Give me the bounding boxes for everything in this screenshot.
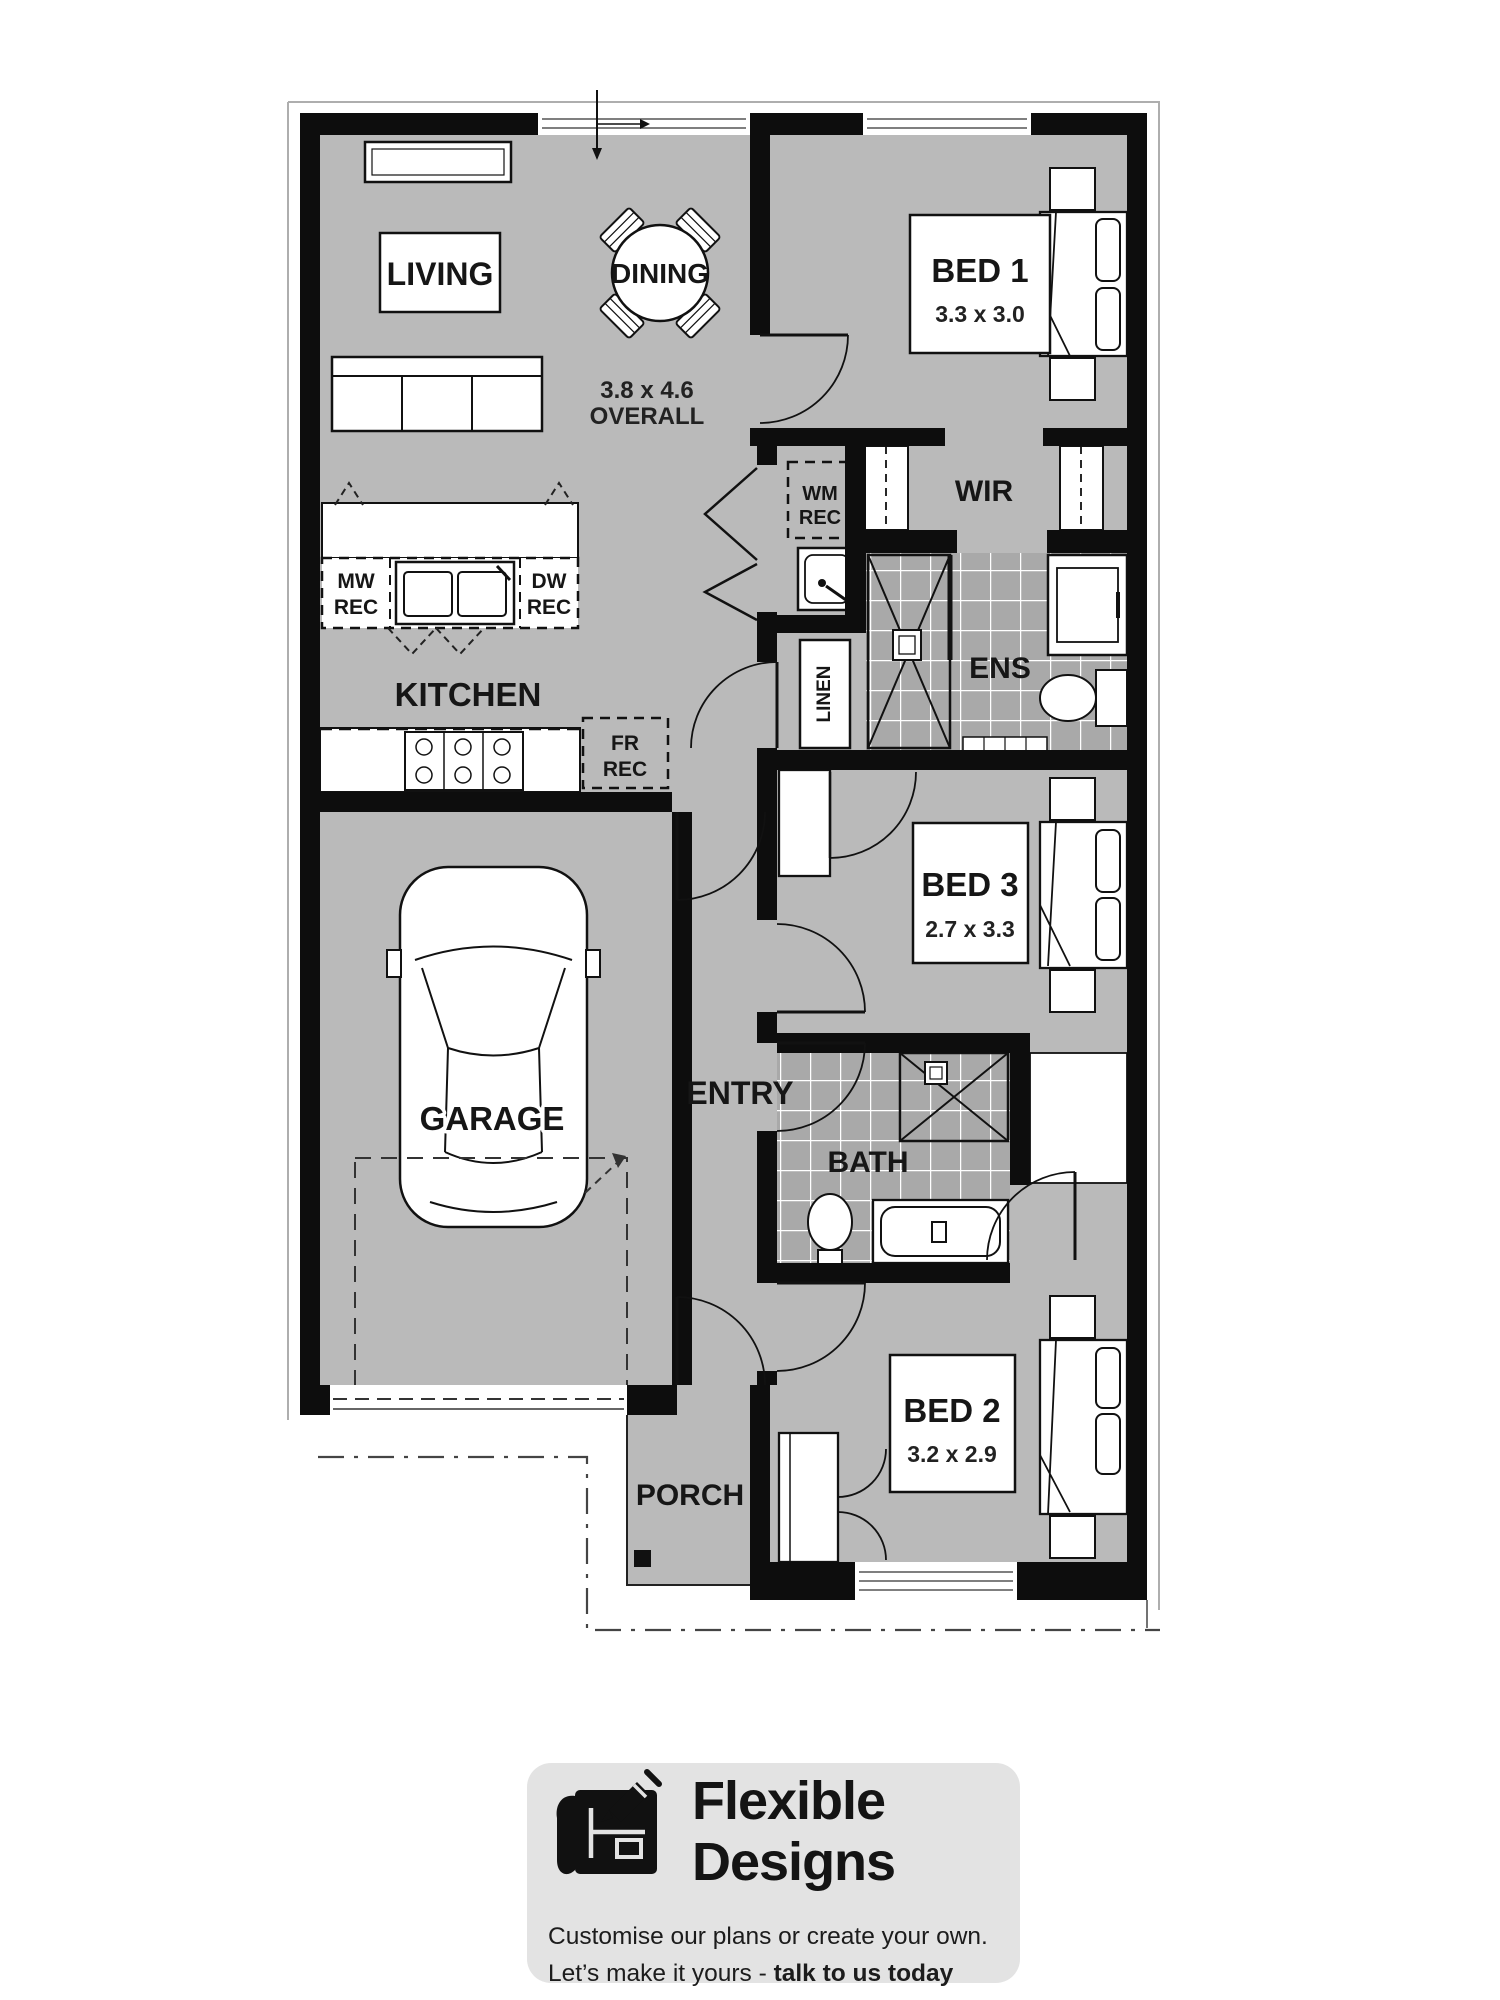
fr-rec-label-line1: FR <box>611 732 639 755</box>
garage-door <box>330 1385 627 1415</box>
kitchen-sink <box>396 562 514 624</box>
wm-rec-label-line2: REC <box>799 507 841 529</box>
dining-overall-dims-line2: OVERALL <box>590 403 705 430</box>
window-bed2 <box>855 1562 1017 1600</box>
bed3-dims: 2.7 x 3.3 <box>925 916 1015 942</box>
bed1-label: BED 1 <box>931 252 1028 289</box>
bed2-label: BED 2 <box>903 1392 1000 1429</box>
bed2-dims: 3.2 x 2.9 <box>907 1441 997 1467</box>
dining-label: DINING <box>611 258 709 289</box>
car <box>387 867 600 1227</box>
cooktop <box>405 732 523 790</box>
ens-label: ENS <box>969 652 1031 685</box>
mw-rec-label-line1: MW <box>337 570 374 593</box>
floor-plan: LIVING DINING 3.8 x 4.6 OVERALL BED 1 3.… <box>0 0 1500 2000</box>
tagline-line2-bold: talk to us today <box>774 1960 954 1987</box>
flexible-designs-logo-icon <box>547 1768 662 1888</box>
porch-post <box>634 1550 651 1567</box>
bed3-label: BED 3 <box>921 866 1018 903</box>
dw-rec-label-line2: REC <box>527 596 571 619</box>
ens-toilet <box>1040 670 1127 726</box>
ens-vanity <box>1048 555 1127 655</box>
linen-label: LINEN <box>814 666 835 723</box>
fr-rec-label-line2: REC <box>603 758 647 781</box>
tv-unit <box>365 142 511 182</box>
mw-rec-label-line2: REC <box>334 596 378 619</box>
sofa <box>332 357 542 431</box>
tagline-line2: Let’s make it yours - talk to us today <box>548 1955 988 1992</box>
dw-rec-label-line1: DW <box>532 570 567 593</box>
tagline-line1: Customise our plans or create your own. <box>548 1918 988 1955</box>
wm-rec-label-line1: WM <box>802 483 838 505</box>
brand-name-line1: Flexible <box>692 1771 895 1832</box>
brand-tagline: Customise our plans or create your own. … <box>548 1918 988 1992</box>
brand-name: Flexible Designs <box>692 1771 895 1893</box>
dining-overall-dims-line1: 3.8 x 4.6 <box>600 377 693 404</box>
porch-label: PORCH <box>636 1479 744 1512</box>
kitchen-bench <box>320 728 580 792</box>
bed1-dims: 3.3 x 3.0 <box>935 301 1025 327</box>
entry-label: ENTRY <box>686 1075 793 1111</box>
living-label: LIVING <box>387 256 494 292</box>
kitchen-label: KITCHEN <box>395 676 542 713</box>
window-top-bed1 <box>863 113 1031 135</box>
hall-storage-nook <box>1030 1053 1127 1183</box>
tagline-line2-prefix: Let’s make it yours - <box>548 1960 774 1987</box>
garage-label: GARAGE <box>420 1100 565 1137</box>
footer-brand-card: Flexible Designs Customise our plans or … <box>527 1763 1020 1983</box>
bath-label: BATH <box>827 1146 908 1179</box>
wir-label: WIR <box>955 475 1014 508</box>
brand-name-line2: Designs <box>692 1832 895 1893</box>
page: LIVING DINING 3.8 x 4.6 OVERALL BED 1 3.… <box>0 0 1500 2000</box>
